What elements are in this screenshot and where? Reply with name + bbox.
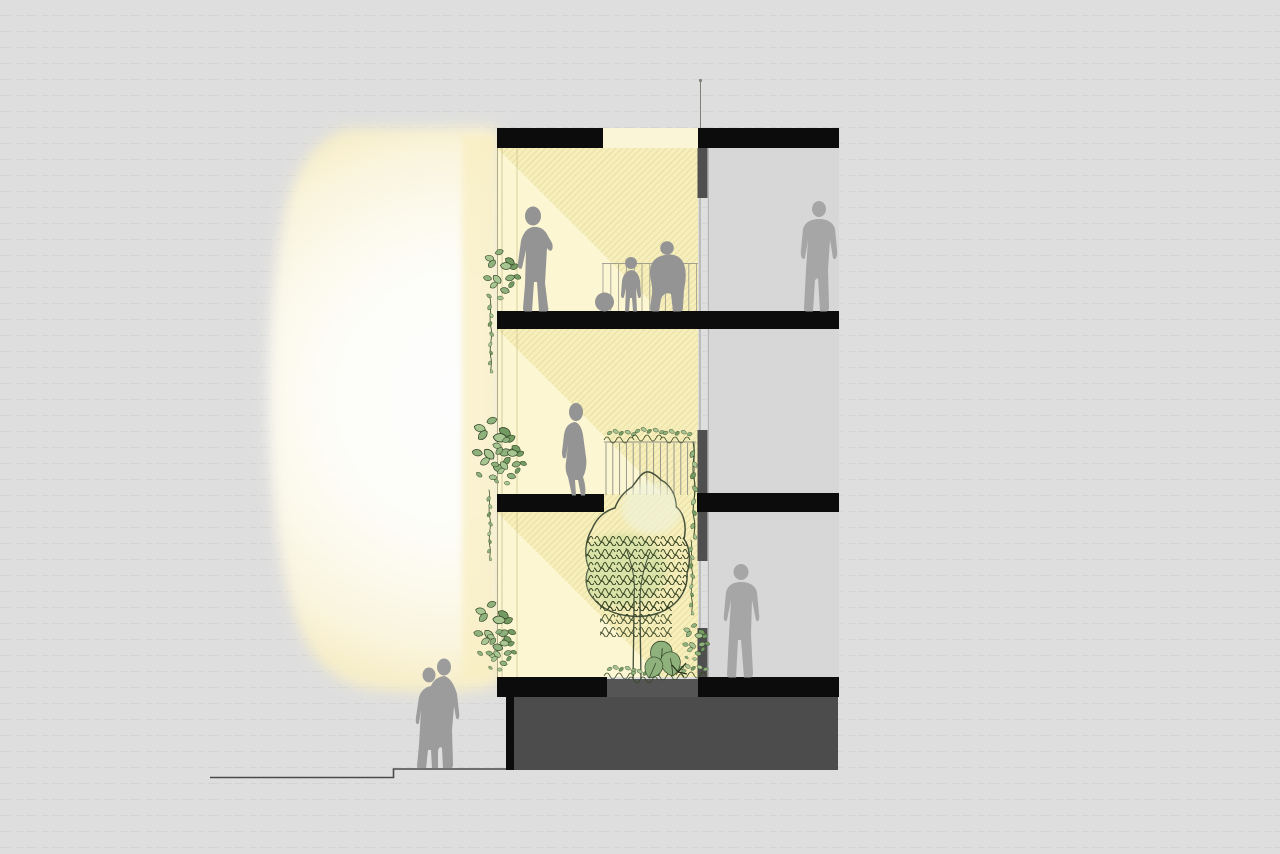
plinth-edge (506, 677, 514, 770)
roof-slab-right (698, 128, 839, 148)
section-drawing (0, 0, 1280, 854)
plinth-body (506, 697, 838, 770)
skylight-shaft (603, 128, 698, 148)
mullion-top (698, 148, 708, 198)
glow-facade-band (462, 135, 497, 680)
ball (595, 293, 614, 312)
daylight-glow (269, 126, 497, 693)
base-band-right (698, 677, 839, 697)
mid-floor-slab-left (497, 494, 604, 512)
tree-foliage-overhang (600, 600, 672, 638)
upper-floor-slab (497, 311, 839, 329)
planter-bed (607, 679, 698, 697)
mid-floor-slab-right (697, 493, 839, 512)
section-drawing-canvas (0, 0, 1280, 854)
roof-slab-left (497, 128, 603, 148)
